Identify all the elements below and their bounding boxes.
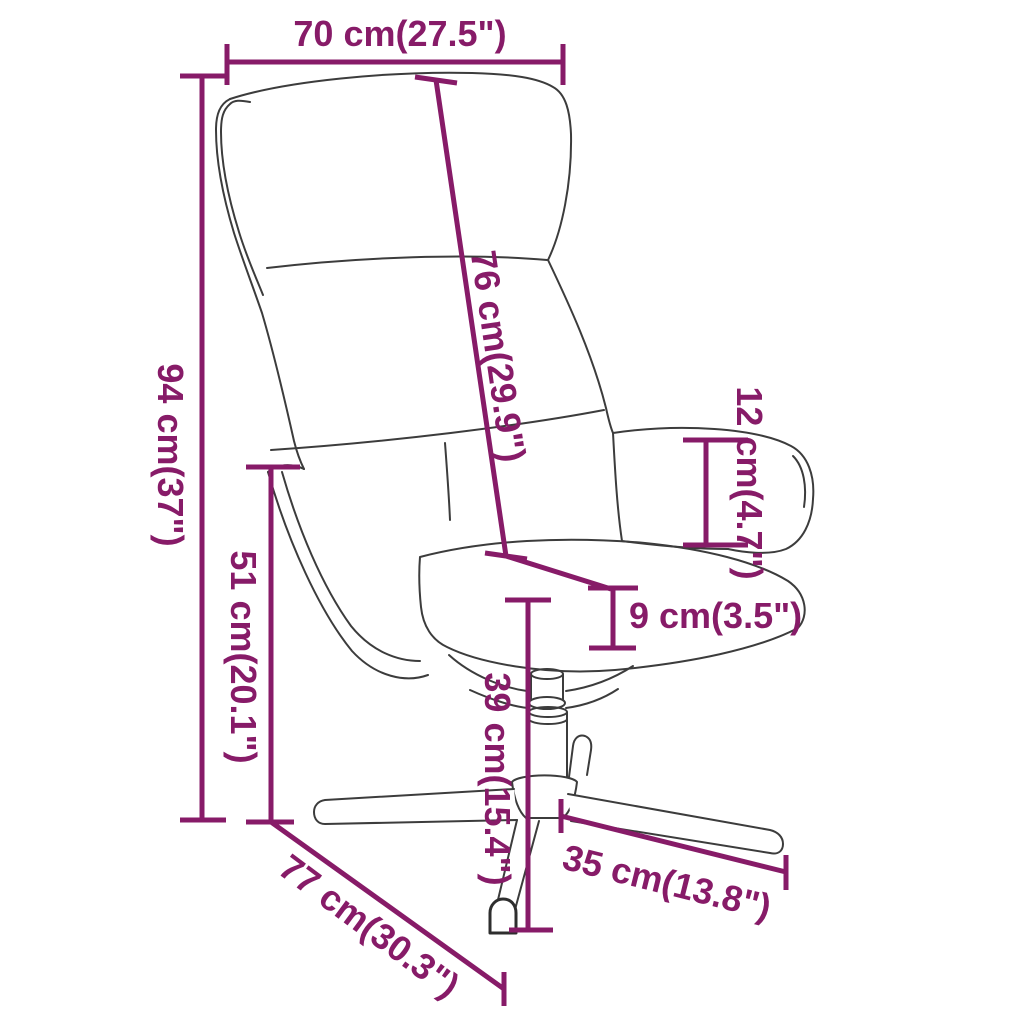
backrest-piping [221, 101, 263, 295]
dimension-annotations: 70 cm(27.5") 76 cm(29.9") 94 cm(37") 51 … [150, 13, 802, 1006]
base-hub [512, 775, 577, 818]
dimension-seat-height: 51 cm(20.1") [223, 467, 300, 822]
dimension-label-base-height: 39 cm(15.4") [477, 672, 518, 885]
backrest-outline-left [216, 99, 304, 469]
armrest-front-edge [613, 433, 622, 541]
backrest-outline-top-right [230, 73, 613, 433]
dimension-label-backrest-length: 76 cm(29.9") [463, 248, 534, 465]
dimension-label-total-height: 94 cm(37") [150, 363, 191, 546]
dimension-total-height: 94 cm(37") [150, 76, 226, 820]
dimension-label-armrest-height: 12 cm(4.7") [729, 386, 770, 579]
dimension-label-top-width: 70 cm(27.5") [293, 13, 506, 54]
underseat-lip-right [566, 689, 618, 708]
dimension-total-depth: 77 cm(30.3") [271, 822, 504, 1006]
backrest-seam-lower [271, 410, 604, 450]
lumbar-crease [445, 443, 450, 520]
armrest-piping [793, 456, 805, 507]
chair-dimensions-diagram: 70 cm(27.5") 76 cm(29.9") 94 cm(37") 51 … [0, 0, 1024, 1024]
dimension-label-cushion-thickness: 9 cm(3.5") [629, 595, 802, 636]
dimension-base-height: 39 cm(15.4") [477, 600, 553, 930]
dimension-label-total-depth: 77 cm(30.3") [272, 846, 468, 1006]
gaslift-column-band [529, 719, 567, 724]
base-leg-rear [569, 735, 591, 777]
dimension-label-seat-height: 51 cm(20.1") [223, 550, 264, 763]
armrest-outline [613, 428, 813, 553]
dimension-label-base-leg-length: 35 cm(13.8") [559, 836, 776, 927]
